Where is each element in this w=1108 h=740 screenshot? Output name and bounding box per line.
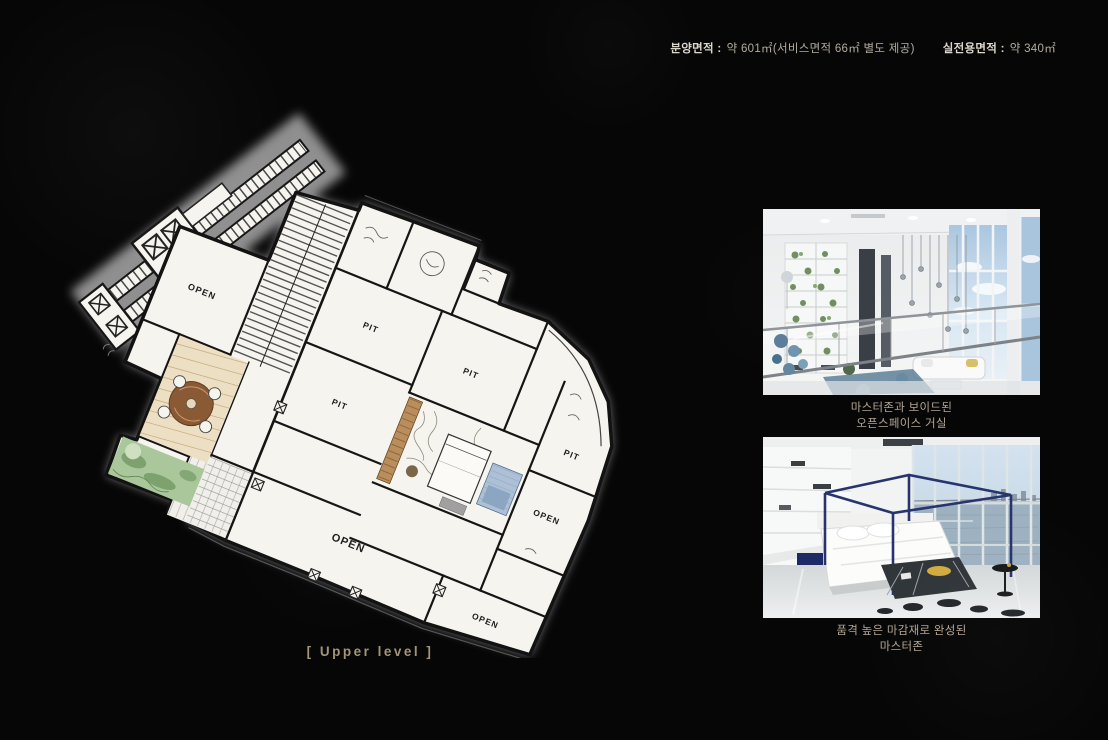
- bedroom-photo: [763, 437, 1040, 618]
- caption-line: 품격 높은 마감재로 완성된: [763, 623, 1040, 639]
- level-caption: [ Upper level ]: [245, 644, 495, 659]
- brochure-page: 분양면적 : 약 601㎡(서비스면적 66㎡ 별도 제공) 실전용면적 : 약…: [0, 0, 1108, 740]
- plan-main-body: OPEN PIT PIT PIT PIT OPEN OPEN OPEN: [74, 134, 670, 658]
- living-room-caption: 마스터존과 보이드된 오픈스페이스 거실: [763, 400, 1040, 432]
- bedroom-caption: 품격 높은 마감재로 완성된 마스터존: [763, 623, 1040, 655]
- ceiling-vent: [883, 439, 923, 446]
- living-room-photo: [763, 209, 1040, 395]
- area-info-header: 분양면적 : 약 601㎡(서비스면적 66㎡ 별도 제공) 실전용면적 : 약…: [670, 40, 1056, 56]
- exclusive-area-value: 약 340㎡: [1010, 40, 1056, 56]
- yellow-throw: [927, 566, 951, 576]
- sale-area-info: 분양면적 : 약 601㎡(서비스면적 66㎡ 별도 제공): [670, 40, 914, 56]
- media-column: [859, 249, 875, 369]
- caption-line: 오픈스페이스 거실: [763, 416, 1040, 432]
- exclusive-area-label: 실전용면적 :: [943, 40, 1005, 56]
- exclusive-area-info: 실전용면적 : 약 340㎡: [943, 40, 1056, 56]
- caption-line: 마스터존: [763, 639, 1040, 655]
- caption-line: 마스터존과 보이드된: [763, 400, 1040, 416]
- sale-area-label: 분양면적 :: [670, 40, 721, 56]
- sale-area-value: 약 601㎡(서비스면적 66㎡ 별도 제공): [727, 40, 915, 56]
- floor-plan-drawing: OPEN PIT PIT PIT PIT OPEN OPEN OPEN: [28, 78, 688, 658]
